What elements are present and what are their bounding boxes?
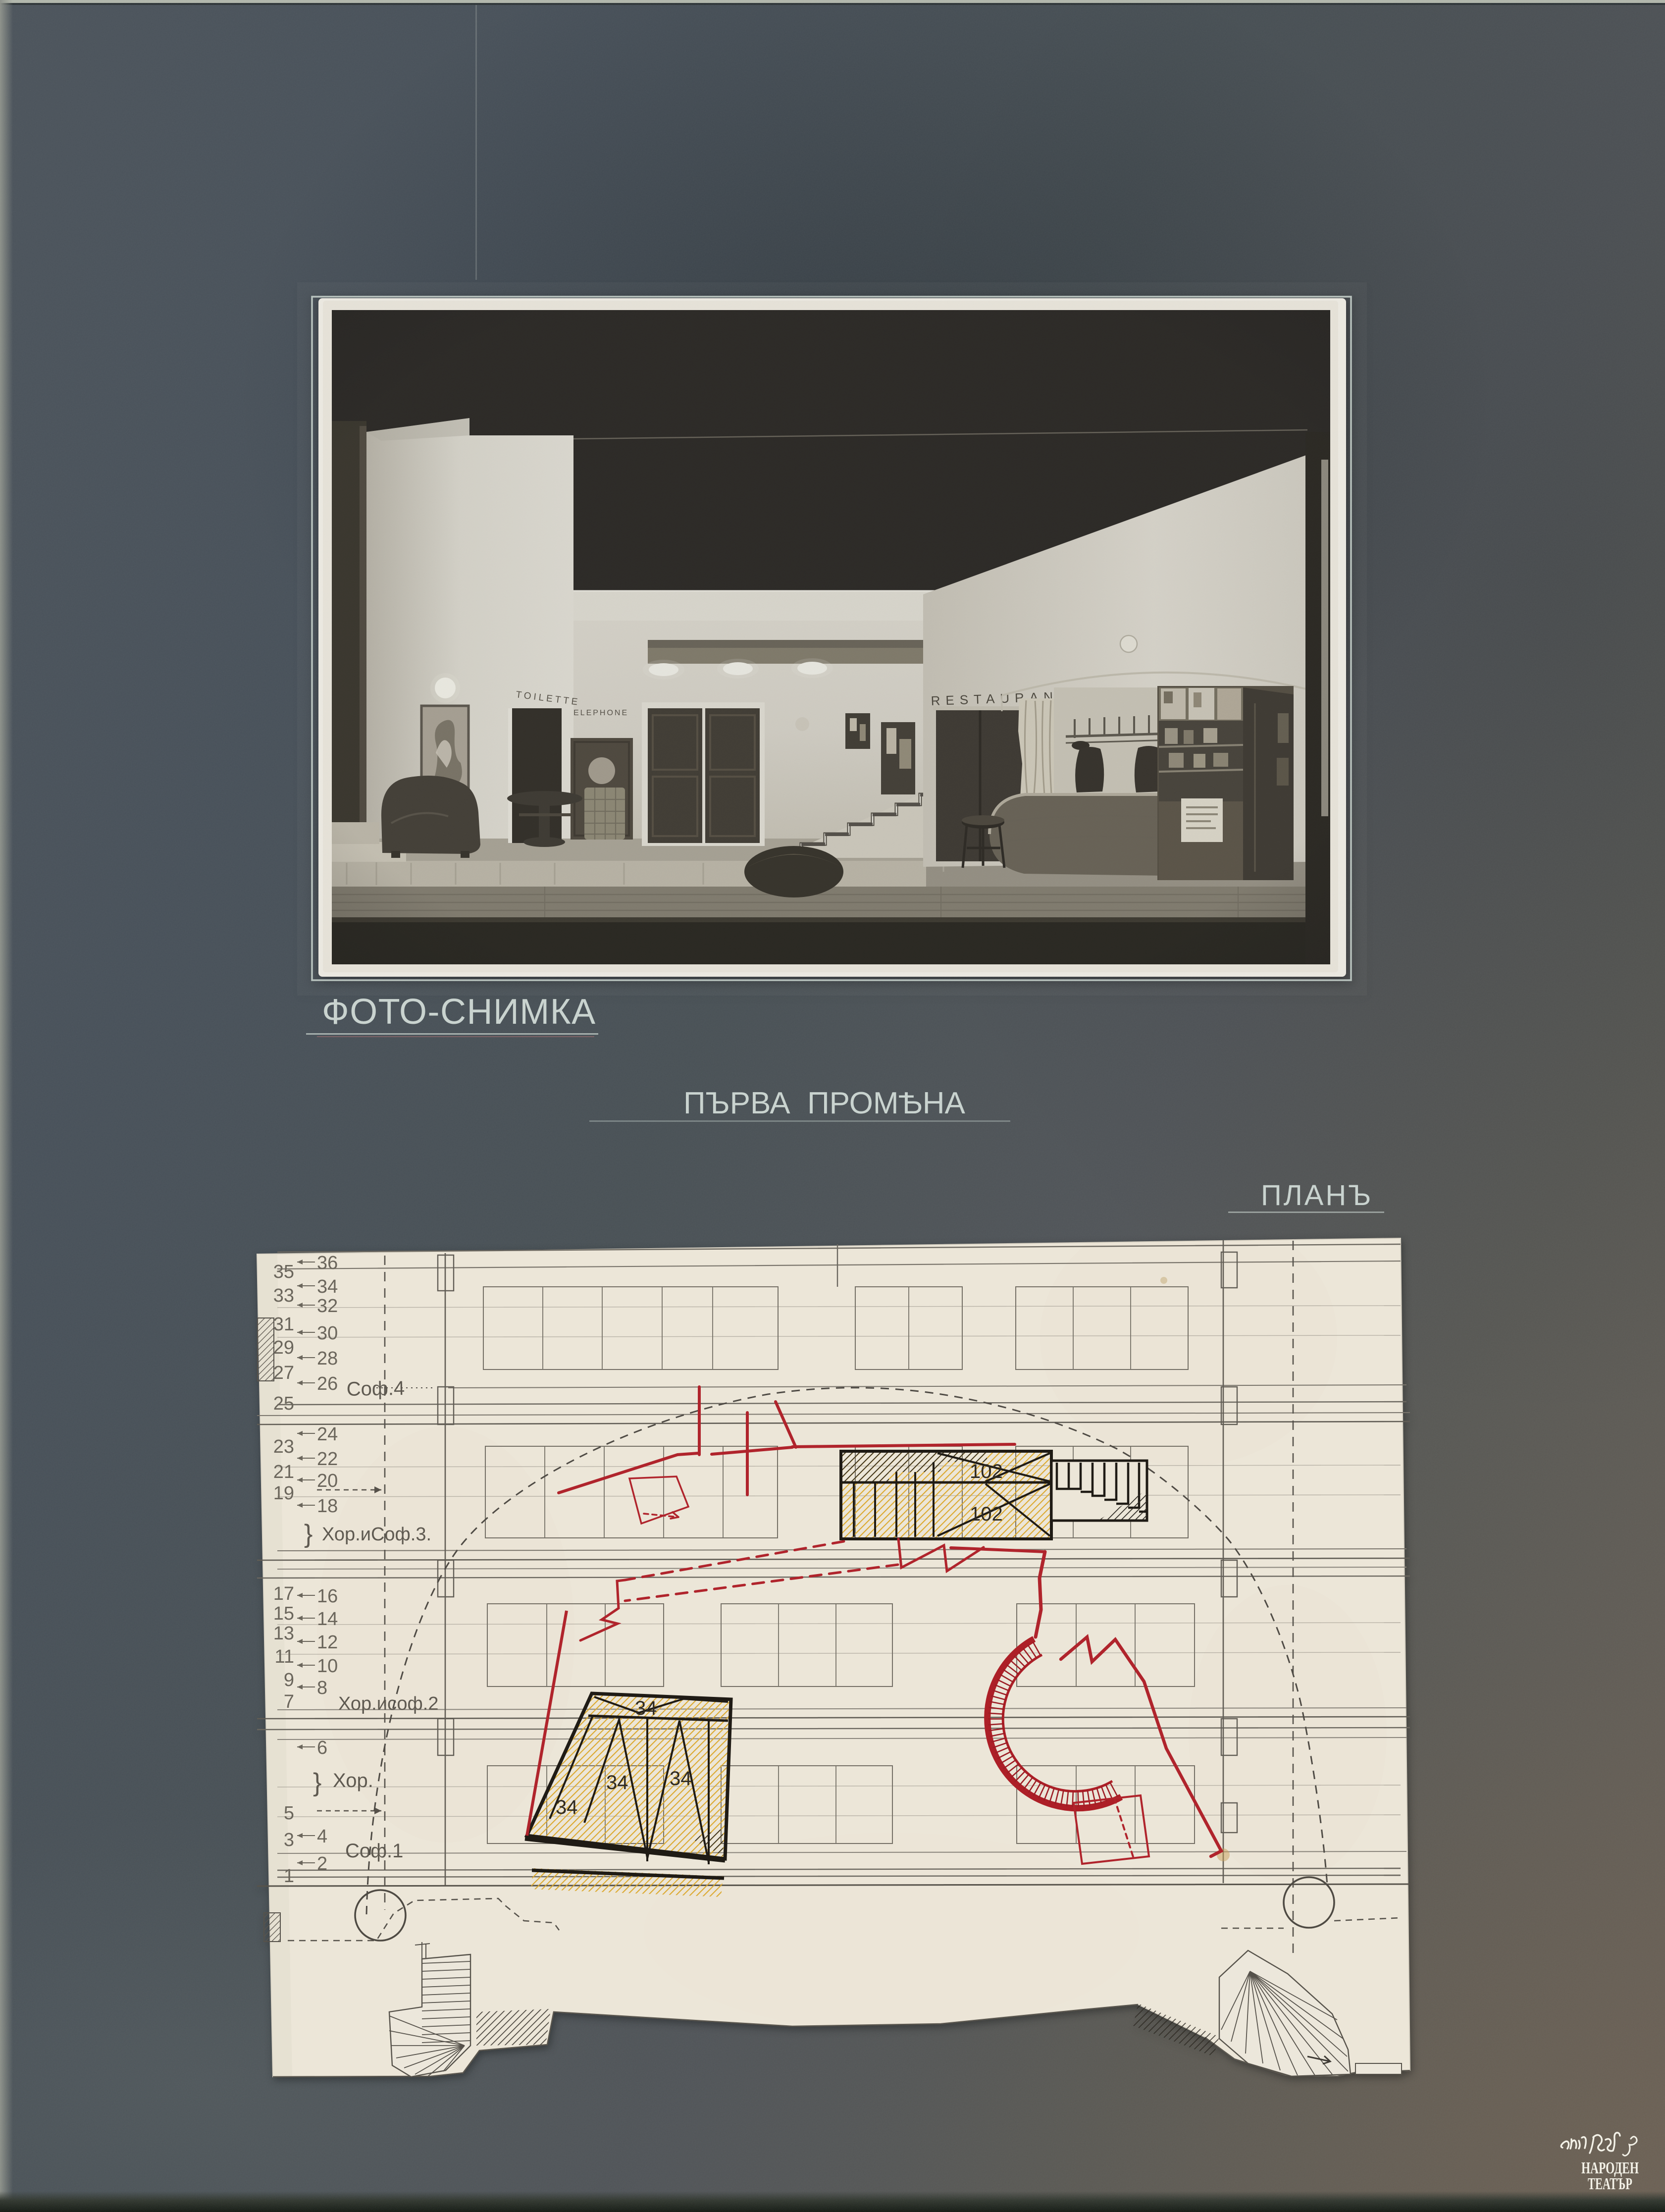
- svg-text:Соф.1: Соф.1: [345, 1840, 403, 1862]
- svg-text:24: 24: [317, 1424, 338, 1445]
- svg-text:34: 34: [556, 1796, 578, 1818]
- svg-text:34: 34: [317, 1276, 338, 1297]
- svg-text:7: 7: [284, 1691, 294, 1712]
- svg-text:33: 33: [273, 1285, 294, 1306]
- svg-text:25: 25: [273, 1393, 294, 1414]
- svg-text:13: 13: [273, 1623, 294, 1644]
- svg-text:6: 6: [317, 1738, 327, 1758]
- svg-text:34: 34: [670, 1768, 692, 1790]
- svg-text:ТЕАТЪР: ТЕАТЪР: [1588, 2175, 1632, 2193]
- svg-text:28: 28: [317, 1348, 338, 1369]
- svg-text:102: 102: [970, 1503, 1003, 1525]
- svg-text:31: 31: [273, 1314, 294, 1335]
- svg-text:10: 10: [317, 1656, 338, 1677]
- svg-text:21: 21: [273, 1462, 294, 1482]
- svg-text:2: 2: [317, 1853, 327, 1874]
- svg-text:11: 11: [275, 1646, 294, 1667]
- svg-text:17: 17: [273, 1583, 294, 1604]
- svg-text:35: 35: [273, 1262, 294, 1282]
- svg-text:4: 4: [317, 1826, 327, 1847]
- svg-text:Хор.: Хор.: [333, 1770, 373, 1791]
- svg-text:5: 5: [284, 1803, 294, 1824]
- svg-text:}: }: [304, 1520, 312, 1548]
- svg-text:34: 34: [606, 1772, 628, 1793]
- svg-text:8: 8: [317, 1678, 327, 1698]
- svg-text:14: 14: [317, 1609, 338, 1630]
- svg-text:15: 15: [273, 1603, 294, 1624]
- svg-text:}: }: [313, 1768, 321, 1797]
- svg-text:32: 32: [317, 1296, 338, 1317]
- svg-text:12: 12: [317, 1632, 338, 1653]
- svg-text:16: 16: [317, 1586, 338, 1607]
- svg-text:34: 34: [635, 1697, 657, 1719]
- svg-text:102: 102: [970, 1461, 1003, 1482]
- svg-text:Хор.исоф.2: Хор.исоф.2: [338, 1693, 439, 1714]
- svg-text:9: 9: [284, 1670, 294, 1690]
- svg-text:26: 26: [317, 1373, 338, 1394]
- svg-text:18: 18: [317, 1496, 338, 1517]
- svg-text:29: 29: [273, 1337, 294, 1358]
- svg-text:Хор.иСоф.3.: Хор.иСоф.3.: [322, 1524, 431, 1545]
- svg-text:Соф.4: Соф.4: [346, 1377, 405, 1400]
- svg-text:23: 23: [273, 1436, 294, 1457]
- svg-text:19: 19: [273, 1483, 294, 1504]
- svg-text:30: 30: [317, 1323, 338, 1344]
- svg-text:1: 1: [284, 1866, 294, 1887]
- svg-text:27: 27: [273, 1363, 294, 1383]
- svg-text:22: 22: [317, 1449, 338, 1470]
- svg-text:36: 36: [317, 1253, 338, 1273]
- svg-text:20: 20: [317, 1471, 338, 1491]
- svg-text:3: 3: [284, 1830, 294, 1850]
